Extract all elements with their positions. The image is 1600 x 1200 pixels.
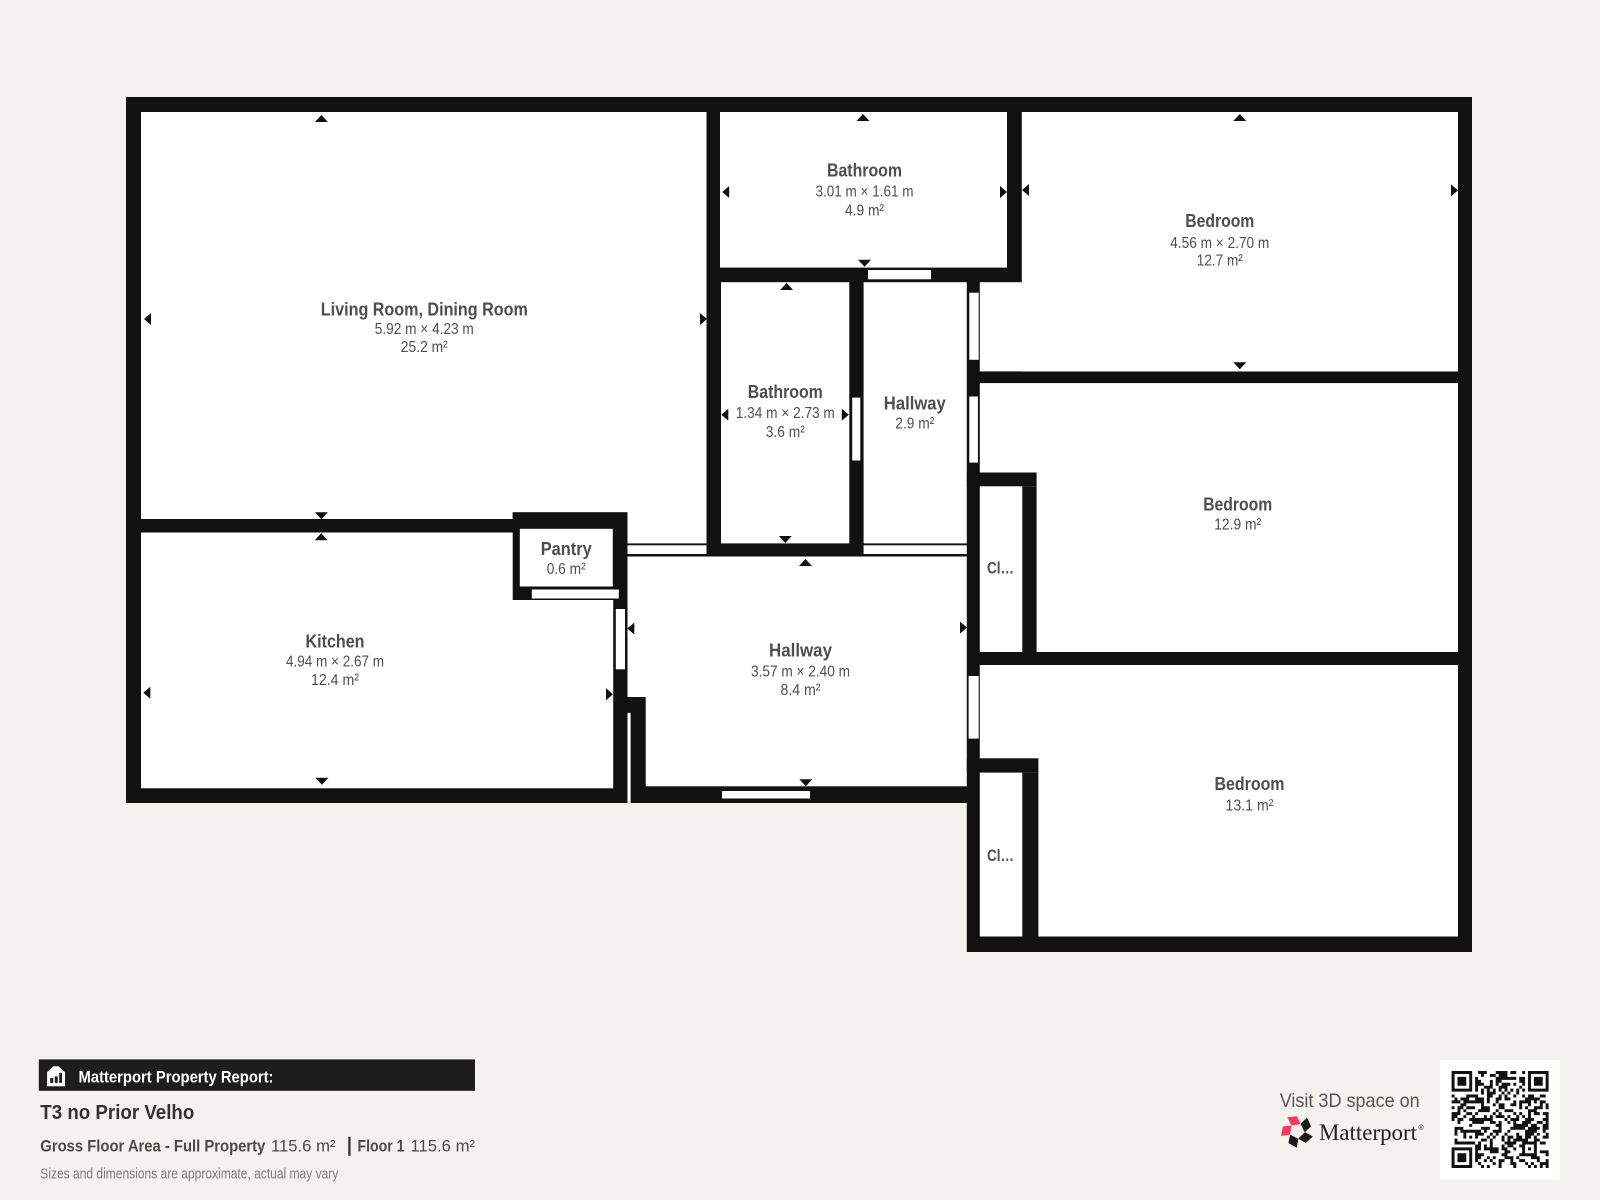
svg-text:3.57 m × 2.40 m: 3.57 m × 2.40 m [751, 664, 850, 681]
svg-text:12.7 m²: 12.7 m² [1197, 253, 1244, 270]
svg-text:Living Room, Dining Room: Living Room, Dining Room [321, 300, 528, 320]
svg-text:0.6 m²: 0.6 m² [547, 561, 587, 578]
svg-text:8.4 m²: 8.4 m² [781, 682, 822, 699]
svg-text:Matterport: Matterport [1319, 1120, 1418, 1145]
svg-text:Gross Floor Area - Full Proper: Gross Floor Area - Full Property [40, 1136, 265, 1155]
svg-text:115.6 m²: 115.6 m² [271, 1136, 336, 1155]
svg-text:Floor 1: Floor 1 [358, 1136, 405, 1155]
svg-text:Bathroom: Bathroom [748, 382, 823, 402]
svg-text:3.6 m²: 3.6 m² [766, 424, 806, 441]
svg-text:3.01 m × 1.61 m: 3.01 m × 1.61 m [816, 184, 914, 201]
svg-text:Sizes and dimensions are appro: Sizes and dimensions are approximate, ac… [40, 1166, 338, 1183]
svg-text:Bedroom: Bedroom [1203, 495, 1272, 515]
svg-text:Pantry: Pantry [541, 539, 592, 559]
svg-text:Bathroom: Bathroom [827, 161, 902, 181]
svg-text:Bedroom: Bedroom [1215, 774, 1285, 794]
svg-text:12.4 m²: 12.4 m² [311, 672, 360, 689]
svg-text:Matterport Property Report:: Matterport Property Report: [79, 1068, 274, 1087]
svg-text:Visit 3D space on: Visit 3D space on [1280, 1090, 1420, 1112]
svg-text:Hallway: Hallway [769, 641, 832, 661]
svg-text:4.9 m²: 4.9 m² [845, 203, 885, 220]
svg-text:13.1 m²: 13.1 m² [1226, 798, 1275, 815]
svg-text:®: ® [1419, 1124, 1425, 1132]
svg-text:1.34 m × 2.73 m: 1.34 m × 2.73 m [736, 405, 835, 422]
svg-text:115.6 m²: 115.6 m² [411, 1136, 476, 1155]
svg-text:Bedroom: Bedroom [1185, 211, 1254, 231]
svg-text:Hallway: Hallway [884, 394, 946, 414]
svg-text:4.94 m × 2.67 m: 4.94 m × 2.67 m [286, 654, 384, 671]
svg-text:12.9 m²: 12.9 m² [1214, 517, 1262, 534]
svg-text:Kitchen: Kitchen [306, 632, 365, 652]
svg-text:4.56 m × 2.70 m: 4.56 m × 2.70 m [1170, 235, 1269, 252]
svg-text:25.2 m²: 25.2 m² [401, 339, 449, 356]
svg-text:Cl…: Cl… [987, 560, 1014, 578]
svg-text:Cl…: Cl… [987, 847, 1014, 865]
svg-text:T3 no Prior Velho: T3 no Prior Velho [40, 1101, 194, 1124]
svg-text:2.9 m²: 2.9 m² [895, 416, 935, 433]
svg-text:5.92 m × 4.23 m: 5.92 m × 4.23 m [375, 321, 474, 338]
